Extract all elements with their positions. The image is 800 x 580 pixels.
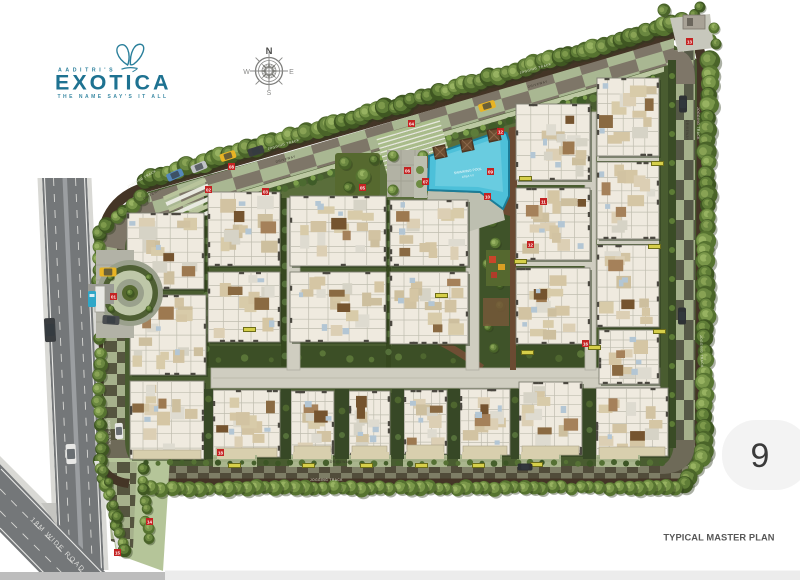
svg-text:06: 06 bbox=[405, 168, 410, 173]
svg-text:12: 12 bbox=[498, 129, 503, 134]
svg-text:E: E bbox=[289, 69, 294, 76]
svg-text:N: N bbox=[266, 46, 273, 57]
svg-text:THE NAME SAY'S IT ALL: THE NAME SAY'S IT ALL bbox=[58, 94, 169, 100]
svg-text:10: 10 bbox=[485, 194, 490, 199]
svg-text:TYPICAL MASTER PLAN: TYPICAL MASTER PLAN bbox=[663, 533, 774, 543]
svg-text:EXOTICA: EXOTICA bbox=[55, 71, 172, 95]
svg-text:9: 9 bbox=[751, 437, 770, 475]
svg-text:13: 13 bbox=[687, 39, 692, 44]
svg-text:18: 18 bbox=[218, 450, 223, 455]
svg-text:W: W bbox=[243, 69, 250, 76]
svg-text:03: 03 bbox=[263, 189, 268, 194]
svg-text:S: S bbox=[267, 90, 272, 97]
svg-text:14: 14 bbox=[147, 519, 152, 524]
svg-text:08: 08 bbox=[229, 164, 234, 169]
svg-text:DRIVEWAY: DRIVEWAY bbox=[330, 460, 351, 464]
svg-text:11: 11 bbox=[541, 199, 546, 204]
svg-text:JOGGING TRACK: JOGGING TRACK bbox=[696, 107, 700, 140]
svg-text:04: 04 bbox=[409, 121, 414, 126]
svg-text:05: 05 bbox=[360, 185, 365, 190]
svg-text:DRIVEWAY: DRIVEWAY bbox=[685, 120, 689, 141]
svg-text:09: 09 bbox=[488, 169, 493, 174]
svg-text:16: 16 bbox=[583, 341, 588, 346]
svg-text:02: 02 bbox=[206, 187, 211, 192]
svg-text:12: 12 bbox=[528, 242, 533, 247]
svg-text:JOGGING TRACK: JOGGING TRACK bbox=[310, 478, 343, 482]
svg-text:07: 07 bbox=[423, 179, 428, 184]
svg-text:15: 15 bbox=[115, 550, 120, 555]
svg-text:01: 01 bbox=[111, 294, 116, 299]
